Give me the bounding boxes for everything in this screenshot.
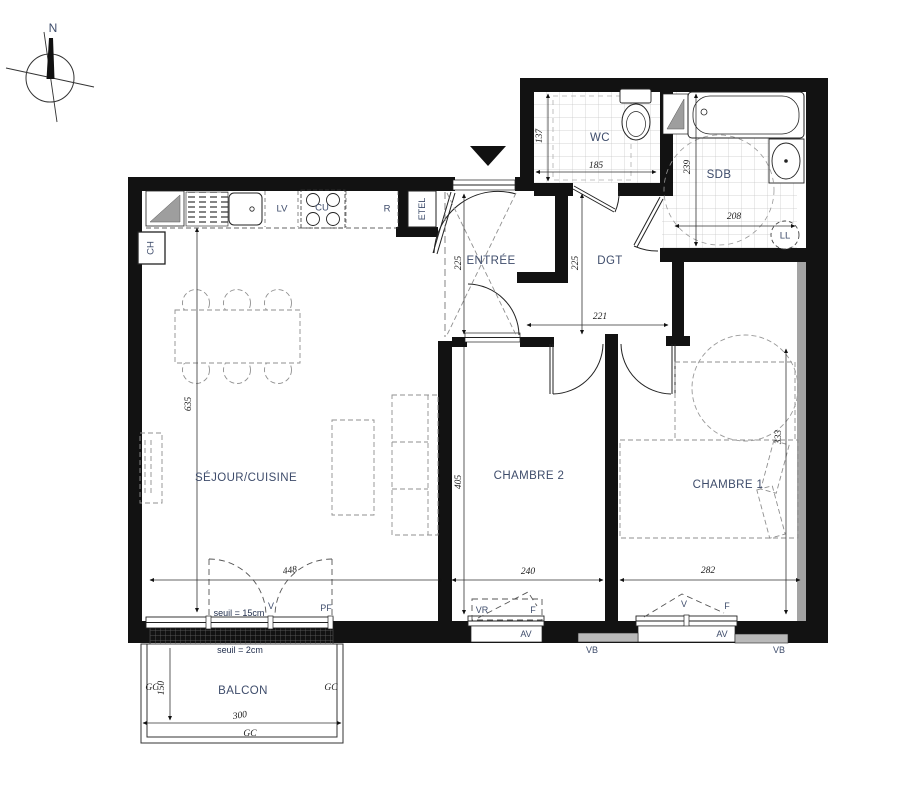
opening-label-av-chambre1: AV (716, 629, 727, 639)
room-label-wc: WC (590, 132, 610, 144)
room-label-entree: ENTRÉE (466, 255, 515, 267)
opening-label-av-chambre2: AV (520, 629, 531, 639)
opening-label-vb-chambre1: VB (773, 645, 785, 655)
dim-sejour-height: 635 (184, 397, 194, 411)
opening-label-v-sejour: V (268, 601, 274, 611)
railing-label-gc-left: GC (145, 683, 158, 693)
dim-dgt-width: 221 (593, 312, 607, 322)
opening-label-vr-chambre2: VR (476, 605, 489, 615)
room-label-chambre2: CHAMBRE 2 (494, 470, 565, 482)
floor-plan: N SÉJOUR/CUISINE ENTRÉE DGT WC SDB CHAMB… (0, 0, 902, 800)
opening-label-v-chambre1: V (681, 599, 687, 609)
kitchen-counter (138, 190, 436, 264)
dim-wc-width: 185 (589, 161, 603, 171)
dim-wc-height: 137 (535, 129, 545, 143)
kitchen-label-r: R (384, 204, 391, 215)
railing-label-gc-right: GC (324, 683, 337, 693)
room-label-balcon: BALCON (218, 685, 268, 697)
kitchen-label-cu: CU (315, 203, 329, 214)
dim-entree-height: 225 (454, 256, 464, 270)
room-label-sdb: SDB (707, 169, 732, 181)
entrance-arrow-icon (470, 146, 506, 166)
opening-label-pf: PF (320, 603, 332, 613)
compass-icon (6, 32, 94, 122)
appliance-label-ll: LL (780, 231, 791, 242)
compass-north-label: N (49, 21, 58, 35)
dim-sdb-width: 208 (727, 212, 741, 222)
opening-label-f-chambre1: F (724, 601, 730, 611)
dim-sdb-height: 239 (683, 160, 693, 174)
kitchen-label-lv: LV (277, 204, 288, 215)
threshold-note-balcon: seuil = 2cm (217, 645, 263, 655)
opening-label-f-chambre2: F (530, 605, 536, 615)
closet-label-ch: CH (146, 241, 157, 255)
dim-chambre2-width: 240 (521, 567, 535, 577)
dim-dgt-height: 225 (571, 256, 581, 270)
dim-chambre2-height: 405 (454, 475, 464, 489)
opening-label-vb-chambre2: VB (586, 645, 598, 655)
floor-plan-drawing (0, 0, 902, 800)
threshold-note-pf: seuil = 15cm (214, 608, 265, 618)
railing-label-gc-bottom: GC (243, 729, 256, 739)
room-label-chambre1: CHAMBRE 1 (693, 479, 764, 491)
balcony-threshold-hatch (150, 627, 333, 644)
dim-chambre1-height: 333 (774, 430, 784, 444)
room-label-sejour-cuisine: SÉJOUR/CUISINE (195, 472, 297, 484)
room-label-dgt: DGT (597, 255, 622, 267)
dim-chambre1-width: 282 (701, 566, 715, 576)
closet-label-etel: ETEL (417, 198, 427, 221)
